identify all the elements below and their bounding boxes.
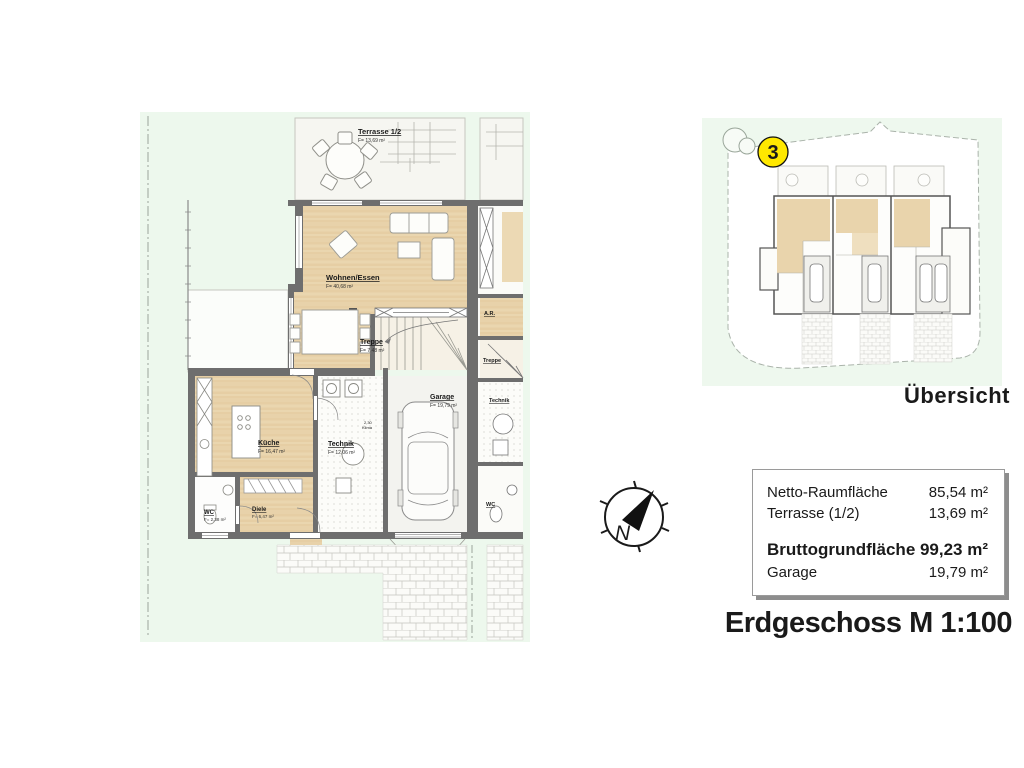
wc-area: F= 2,38 m²	[204, 517, 226, 522]
neighbor-unit: A.R. Treppe Technik WC	[478, 206, 523, 532]
overview-buildings	[760, 196, 970, 314]
overview-terraces	[778, 166, 944, 196]
sideboard-icon	[375, 308, 467, 317]
stairs-label: Treppe	[360, 339, 383, 346]
summary-spacer	[767, 524, 988, 538]
summary-value: 13,69 m²	[929, 503, 988, 524]
neighbor-technik-label: Technik	[489, 398, 510, 404]
garage-area: F= 19,79 m²	[430, 403, 457, 409]
neighbor-wc-label: WC	[486, 502, 495, 508]
neighbor-stairs-label: Treppe	[483, 358, 501, 364]
summary-row-terrasse: Terrasse (1/2) 13,69 m²	[767, 503, 988, 524]
summary-label: Bruttogrundfläche	[767, 538, 915, 562]
summary-label: Terrasse (1/2)	[767, 503, 860, 524]
kitchen-island-icon	[232, 406, 260, 458]
sheet-title: Erdgeschoss M 1:100	[725, 607, 1012, 640]
terrace-label: Terrasse 1/2	[358, 127, 401, 136]
neighbor-driveway-paving	[487, 545, 523, 640]
dining-table-icon	[290, 310, 370, 354]
unit-badge-number: 3	[767, 142, 778, 164]
room-wc	[195, 476, 240, 532]
summary-value: 19,79 m²	[929, 562, 988, 583]
living-label: Wohnen/Essen	[326, 273, 380, 282]
garage-label: Garage	[430, 394, 454, 401]
summary-row-brutto: Bruttogrundfläche 99,23 m²	[767, 538, 988, 562]
hall-area: F= 6,47 m²	[252, 514, 274, 519]
hall-label: Diele	[252, 507, 267, 513]
summary-row-garage: Garage 19,79 m²	[767, 562, 988, 583]
summary-label: Garage	[767, 562, 817, 583]
kitchen-label: Küche	[258, 440, 280, 447]
summary-value: 85,54 m²	[929, 482, 988, 503]
summary-row-netto: Netto-Raumfläche 85,54 m²	[767, 482, 988, 503]
overview-driveways	[802, 314, 952, 364]
overview-site-plan: 3	[702, 118, 1002, 386]
terrace: Terrasse 1/2 F= 13,69 m²	[295, 118, 465, 200]
main-floor-plan: Terrasse 1/2 F= 13,69 m²	[140, 112, 530, 642]
car-icon	[398, 402, 458, 520]
unit-badge: 3	[758, 137, 788, 167]
technik-area: F= 12,06 m²	[328, 450, 355, 456]
north-letter: N	[615, 522, 631, 545]
neighbor-ar-label: A.R.	[484, 311, 495, 317]
neighbor-terrace	[480, 118, 523, 200]
summary-value: 99,23 m²	[920, 538, 988, 562]
kitchen-area: F= 16,47 m²	[258, 449, 285, 455]
entrance-step	[290, 539, 322, 545]
summary-label: Netto-Raumfläche	[767, 482, 888, 503]
terrace-area: F= 13,69 m²	[358, 138, 385, 144]
living-area: F= 40,68 m²	[326, 284, 353, 290]
area-summary-box: Netto-Raumfläche 85,54 m² Terrasse (1/2)…	[752, 469, 1005, 596]
klima-label: Klima	[362, 425, 373, 430]
technik-label: Technik	[328, 441, 354, 448]
wardrobe-icon	[244, 479, 302, 493]
side-patio	[188, 290, 288, 372]
kitchen-cabinets-icon	[197, 378, 212, 476]
stairs-area: F= 7,48 m²	[360, 348, 385, 354]
north-arrow-icon: N	[588, 473, 678, 563]
floorplan-sheet: Terrasse 1/2 F= 13,69 m²	[0, 0, 1024, 768]
wc-label: WC	[204, 510, 215, 516]
overview-title: Übersicht	[860, 383, 1010, 409]
